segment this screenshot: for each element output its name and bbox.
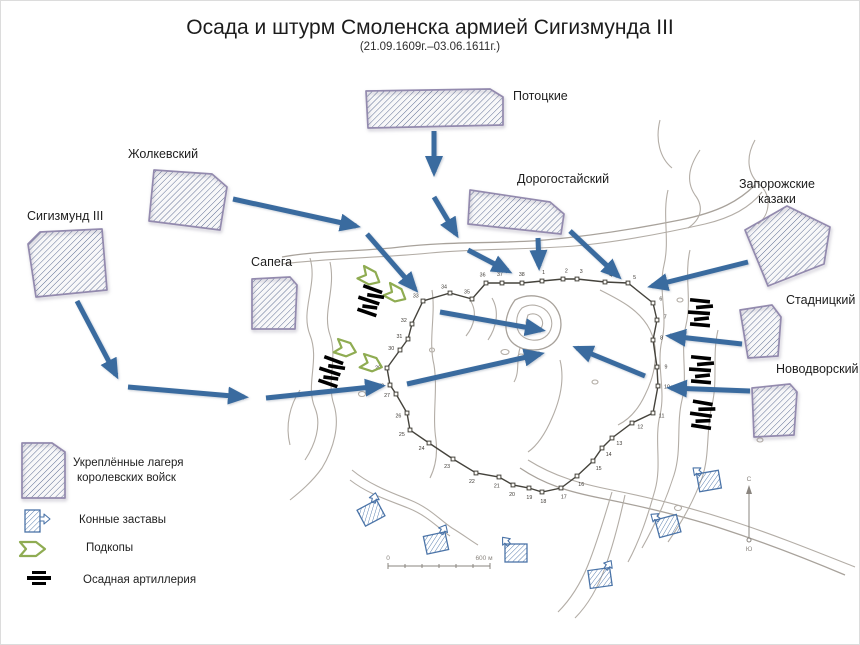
compass-south-label: Ю [746, 546, 753, 553]
wall-tower [655, 365, 659, 369]
tower-number: 19 [526, 495, 532, 501]
tower-number: 21 [494, 484, 500, 490]
wall-tower [394, 392, 398, 396]
wall-tower [388, 383, 392, 387]
camp-sigismund-iii [28, 229, 107, 297]
wall-tower [497, 475, 501, 479]
tower-number: 27 [384, 393, 390, 399]
wall-tower [591, 459, 595, 463]
wall-tower [561, 277, 565, 281]
legend-fortified-camp-label-line2: королевских войск [77, 472, 177, 484]
wall-tower [385, 366, 389, 370]
tower-number: 9 [664, 364, 667, 370]
camp-label-sapieha: Сапега [251, 255, 292, 269]
wall-tower [484, 281, 488, 285]
wall-tower [398, 348, 402, 352]
map-subtitle: (21.09.1609г.–03.06.1611г.) [360, 41, 500, 53]
tower-number: 6 [659, 297, 662, 303]
legend-tunnel-label: Подкопы [86, 542, 133, 554]
wall-tower [655, 318, 659, 322]
wall-tower [559, 486, 563, 490]
wall-tower [520, 281, 524, 285]
wall-tower [651, 338, 655, 342]
slide: С Ю 0 600 м 1234567891011121314151617181… [0, 0, 860, 645]
wall-tower [630, 421, 634, 425]
camp-label-stadnitski: Стадницкий [786, 293, 855, 307]
wall-tower [603, 280, 607, 284]
tower-number: 11 [659, 413, 665, 419]
wall-tower [651, 301, 655, 305]
tower-number: 38 [519, 272, 525, 278]
wall-tower [470, 297, 474, 301]
wall-tower [500, 281, 504, 285]
tower-number: 26 [395, 414, 401, 420]
tower-number: 2 [565, 269, 568, 275]
scale-left-label: 0 [386, 555, 390, 562]
tower-number: 3 [580, 269, 583, 275]
wall-tower [511, 483, 515, 487]
tower-number: 12 [637, 425, 643, 431]
map-title: Осада и штурм Смоленска армией Сигизмунд… [186, 16, 674, 39]
camp-label-dorogostaiski: Дорогостайский [517, 172, 609, 186]
tower-number: 33 [413, 294, 419, 300]
wall-tower [405, 411, 409, 415]
tower-number: 8 [660, 336, 663, 342]
camp-stadnitski [740, 305, 781, 358]
tower-number: 23 [444, 464, 450, 470]
wall-tower [656, 384, 660, 388]
tower-number: 34 [441, 284, 447, 290]
tower-number: 14 [606, 452, 612, 458]
camp-sapieha [252, 277, 297, 329]
camp-label-zaporozhian-line2: казаки [758, 192, 796, 206]
wall-tower [406, 337, 410, 341]
wall-tower [610, 436, 614, 440]
camp-novodvorski [752, 384, 797, 437]
tower-number: 24 [419, 446, 425, 452]
tower-number: 7 [664, 314, 667, 320]
legend-cavalry-outpost-label: Конные заставы [79, 514, 166, 526]
wall-tower [626, 281, 630, 285]
wall-tower [575, 474, 579, 478]
camp-label-zaporozhian-line1: Запорожские [739, 177, 815, 191]
wall-tower [410, 322, 414, 326]
wall-tower [408, 428, 412, 432]
tower-number: 37 [497, 272, 503, 278]
assault-arrow [538, 238, 539, 266]
camp-label-sigismund-iii: Сигизмунд III [27, 209, 103, 223]
wall-tower [448, 291, 452, 295]
wall-tower [600, 446, 604, 450]
legend-fortified-camp-label-line1: Укреплённые лагеря [73, 457, 183, 469]
tower-number: 15 [596, 466, 602, 472]
camp-pototski [366, 89, 503, 128]
legend-fortified-camp-icon [22, 443, 65, 498]
tower-number: 31 [396, 334, 402, 340]
tower-number: 1 [542, 270, 545, 276]
tower-number: 18 [540, 499, 546, 505]
tower-number: 13 [616, 441, 622, 447]
wall-tower [540, 279, 544, 283]
wall-tower [540, 490, 544, 494]
compass-north-label: С [747, 476, 752, 483]
camp-zholkievski [149, 170, 227, 230]
scale-right-label: 600 м [475, 555, 493, 562]
camp-label-zholkievski: Жолкевский [128, 147, 198, 161]
tower-number: 25 [399, 432, 405, 438]
legend-siege-artillery-label: Осадная артиллерия [83, 574, 196, 586]
wall-tower [421, 299, 425, 303]
tower-number: 16 [578, 482, 584, 488]
wall-tower [527, 486, 531, 490]
tower-number: 30 [388, 346, 394, 352]
wall-tower [451, 457, 455, 461]
tower-number: 4 [609, 273, 612, 279]
wall-tower [575, 277, 579, 281]
wall-tower [427, 441, 431, 445]
tower-number: 20 [509, 492, 515, 498]
tower-number: 10 [664, 385, 670, 391]
tower-number: 36 [480, 273, 486, 279]
tower-number: 22 [469, 479, 475, 485]
tower-number: 5 [633, 275, 636, 281]
wall-tower [651, 411, 655, 415]
camp-label-pototski: Потоцкие [513, 89, 568, 103]
tower-number: 35 [464, 290, 470, 296]
tower-number: 32 [401, 318, 407, 324]
tower-number: 17 [561, 495, 567, 501]
assault-arrow [671, 388, 750, 391]
camp-label-novodvorski: Новодворский [776, 362, 859, 376]
wall-tower [474, 471, 478, 475]
